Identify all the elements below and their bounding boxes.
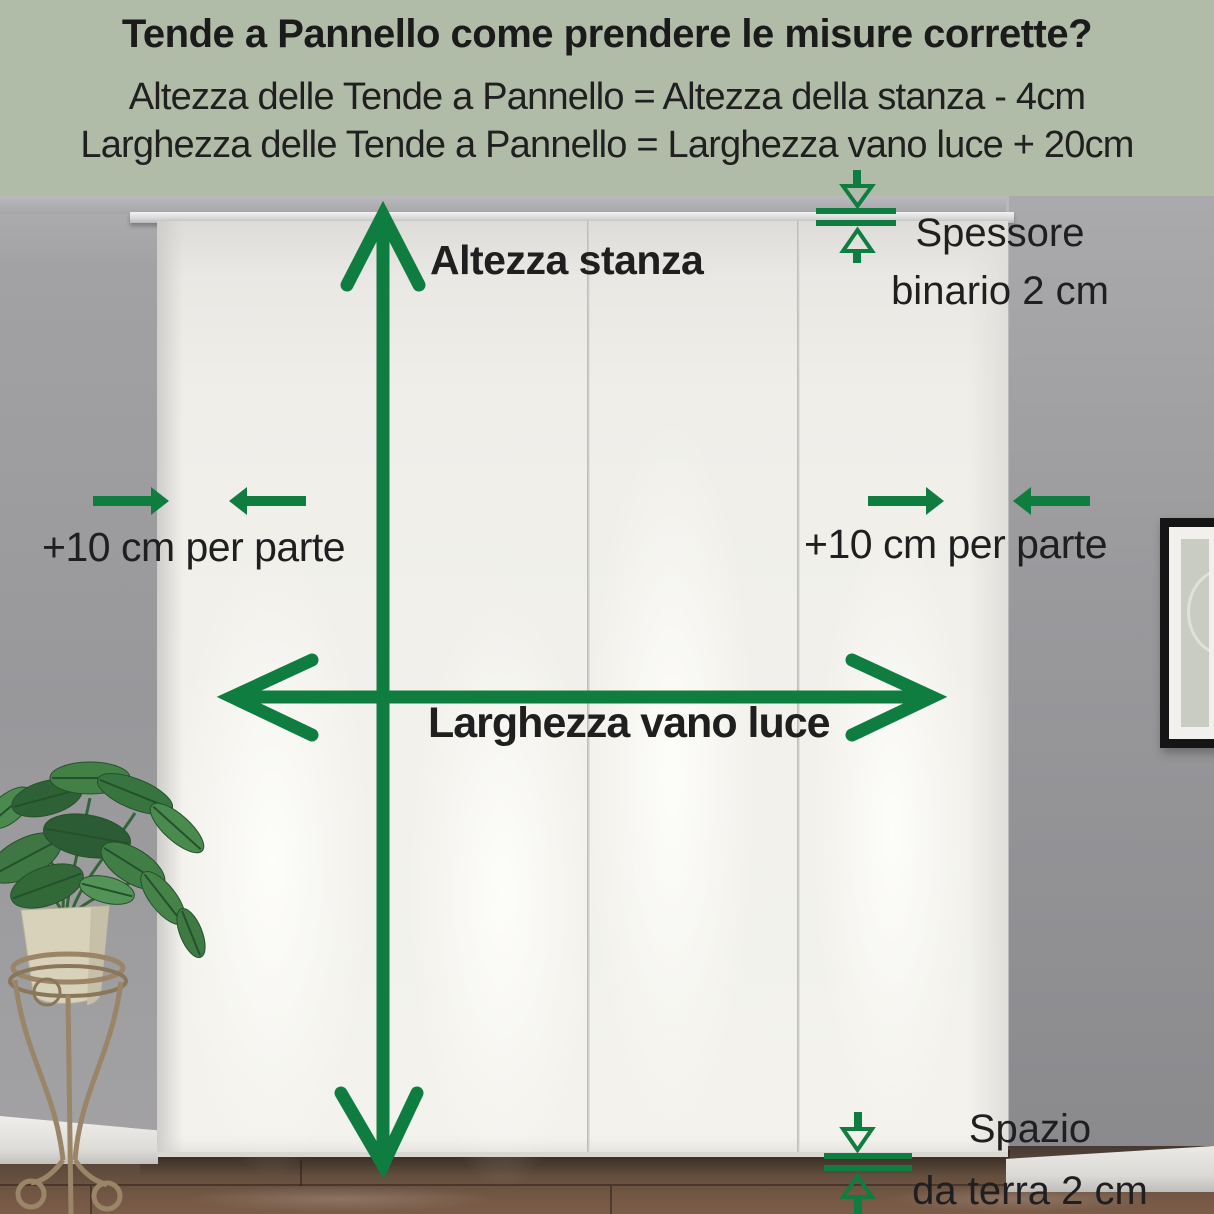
floor-gap-line1: Spazio bbox=[900, 1098, 1160, 1160]
rail-thickness-line2: binario 2 cm bbox=[880, 262, 1120, 320]
formula-height: Altezza delle Tende a Pannello = Altezza… bbox=[0, 73, 1214, 121]
floor-gap-line2: da terra 2 cm bbox=[900, 1160, 1160, 1214]
light-reflection bbox=[587, 411, 757, 1141]
frame-artwork bbox=[1181, 539, 1209, 727]
panel-curtains bbox=[157, 221, 1008, 1157]
room-height-label: Altezza stanza bbox=[430, 237, 703, 284]
side-margin-left-label: +10 cm per parte bbox=[42, 524, 345, 571]
rail-thickness-line1: Spessore bbox=[880, 204, 1120, 262]
light-reflection bbox=[812, 521, 972, 1141]
floor-tile-line bbox=[610, 1186, 612, 1214]
panel-seam bbox=[587, 221, 590, 1157]
panel-seam bbox=[380, 221, 383, 1157]
curtain-hem bbox=[157, 1152, 1008, 1157]
light-reflection bbox=[407, 591, 597, 1191]
potted-plant bbox=[0, 728, 210, 1214]
side-margin-right-label: +10 cm per parte bbox=[804, 521, 1107, 568]
panel-seam bbox=[797, 221, 800, 1157]
floor-gap-label: Spazio da terra 2 cm bbox=[900, 1098, 1160, 1214]
header-band: Tende a Pannello come prendere le misure… bbox=[0, 0, 1214, 196]
rail-thickness-label: Spessore binario 2 cm bbox=[880, 204, 1120, 320]
page-title: Tende a Pannello come prendere le misure… bbox=[0, 0, 1214, 57]
curtain-right-edge bbox=[968, 221, 1008, 1157]
picture-frame bbox=[1160, 518, 1214, 748]
opening-width-label: Larghezza vano luce bbox=[428, 699, 830, 748]
formula-width: Larghezza delle Tende a Pannello = Largh… bbox=[0, 121, 1214, 169]
infographic: Tende a Pannello come prendere le misure… bbox=[0, 0, 1214, 1214]
